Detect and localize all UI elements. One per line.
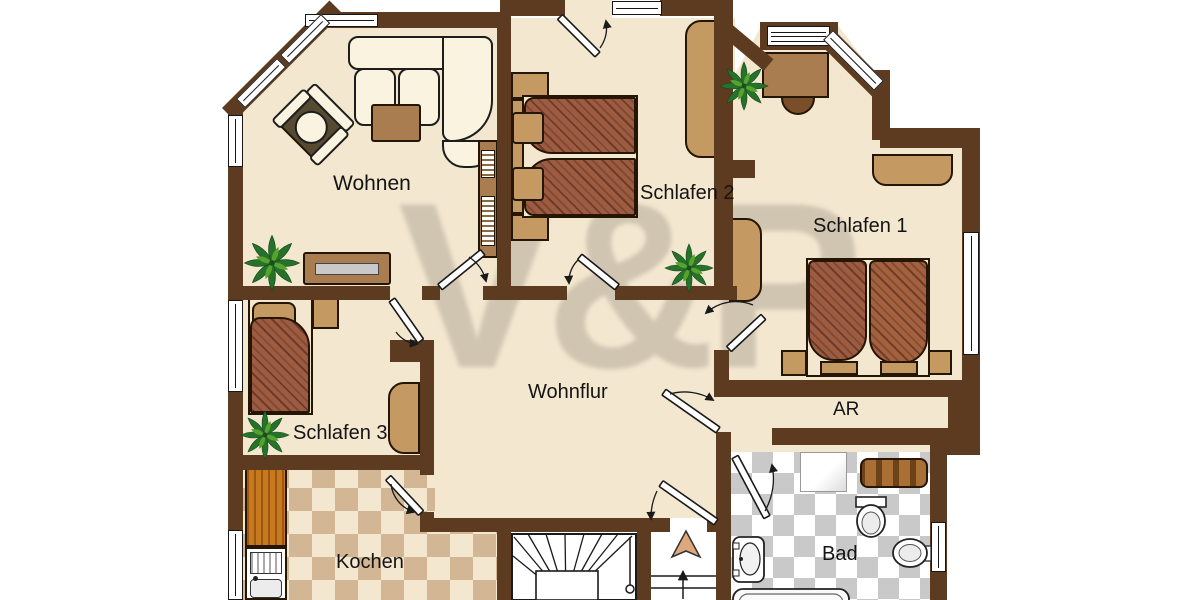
label-wohnflur: Wohnflur — [528, 381, 608, 403]
wall — [772, 428, 950, 445]
wall — [228, 286, 390, 300]
floor-schlafen2-door-opening — [563, 0, 612, 20]
wall — [716, 432, 731, 600]
label-schlafen2: Schlafen 2 — [640, 182, 735, 204]
wall — [714, 0, 733, 300]
sideboard-inset — [315, 263, 379, 275]
window — [767, 26, 830, 46]
radiator — [860, 458, 928, 488]
bed-pillow — [512, 167, 544, 201]
nightstand — [312, 298, 339, 329]
sideboard-wohnen — [303, 252, 391, 285]
tv-shelf-unit — [478, 140, 498, 258]
label-schlafen1: Schlafen 1 — [813, 215, 908, 237]
label-kochen: Kochen — [336, 551, 404, 573]
window — [228, 115, 243, 167]
wall — [390, 340, 434, 362]
faucet — [253, 576, 258, 581]
sideboard-schlafen1 — [872, 154, 953, 186]
kitchen-sink-unit — [245, 547, 287, 600]
shelf-slats — [481, 150, 495, 178]
shower-tray — [800, 452, 847, 492]
wall — [714, 350, 729, 380]
label-wohnen: Wohnen — [333, 172, 411, 195]
window — [931, 522, 946, 572]
bed-pillow — [512, 112, 544, 144]
coffee-table — [371, 104, 421, 142]
shelf-slats — [481, 196, 495, 246]
wall — [420, 518, 670, 532]
wall — [497, 518, 511, 600]
wall — [483, 286, 567, 300]
bed-duvet — [250, 317, 310, 413]
kitchen-counter — [245, 467, 287, 547]
wall — [729, 160, 755, 178]
wall — [497, 14, 511, 292]
wall — [422, 286, 440, 300]
label-ar: AR — [833, 400, 859, 421]
nightstand — [781, 350, 807, 376]
nightstand — [511, 214, 549, 241]
dish-rack — [250, 552, 282, 574]
wall — [714, 380, 953, 397]
label-schlafen3: Schlafen 3 — [293, 422, 388, 444]
bed-duvet — [808, 260, 867, 361]
nightstand — [928, 350, 952, 375]
wall — [637, 518, 651, 600]
label-bad: Bad — [822, 543, 858, 565]
bed-pillow — [820, 361, 858, 375]
window — [612, 1, 662, 15]
wall — [660, 0, 715, 16]
floor-plan: V&P — [0, 0, 1200, 600]
floor-kochen-tiles-ext — [435, 532, 497, 600]
floor-stairwell — [511, 533, 637, 600]
sink-bowl — [250, 579, 282, 598]
window — [228, 300, 243, 392]
bed-pillow — [880, 361, 918, 375]
bed-duvet — [869, 260, 928, 364]
window — [963, 232, 979, 355]
wall — [228, 455, 434, 470]
window — [228, 530, 243, 600]
wardrobe-schlafen3 — [388, 382, 420, 454]
